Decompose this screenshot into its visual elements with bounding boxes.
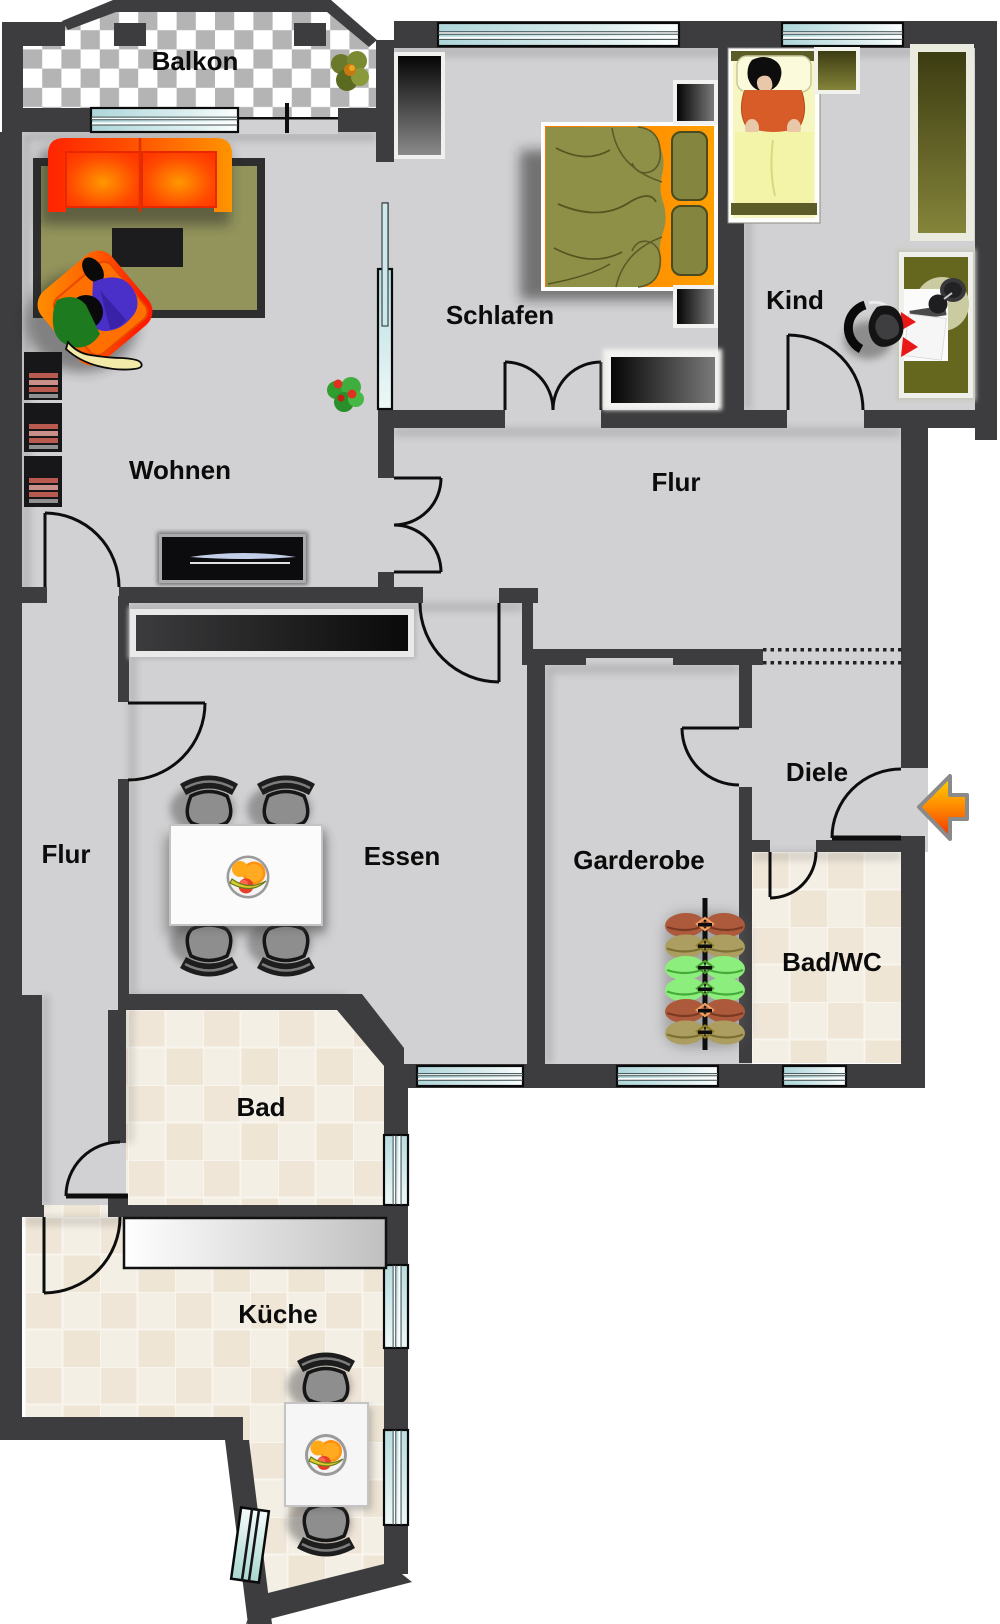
svg-text:Bad: Bad [236,1092,285,1122]
svg-text:Garderobe: Garderobe [573,845,705,875]
svg-text:Diele: Diele [786,757,848,787]
svg-text:Bad/WC: Bad/WC [782,947,882,977]
svg-text:Küche: Küche [238,1299,317,1329]
svg-text:Flur: Flur [651,467,700,497]
svg-text:Kind: Kind [766,285,824,315]
svg-text:Flur: Flur [41,839,90,869]
svg-text:Balkon: Balkon [152,46,239,76]
svg-text:Schlafen: Schlafen [446,300,554,330]
svg-text:Wohnen: Wohnen [129,455,231,485]
svg-text:Essen: Essen [364,841,441,871]
